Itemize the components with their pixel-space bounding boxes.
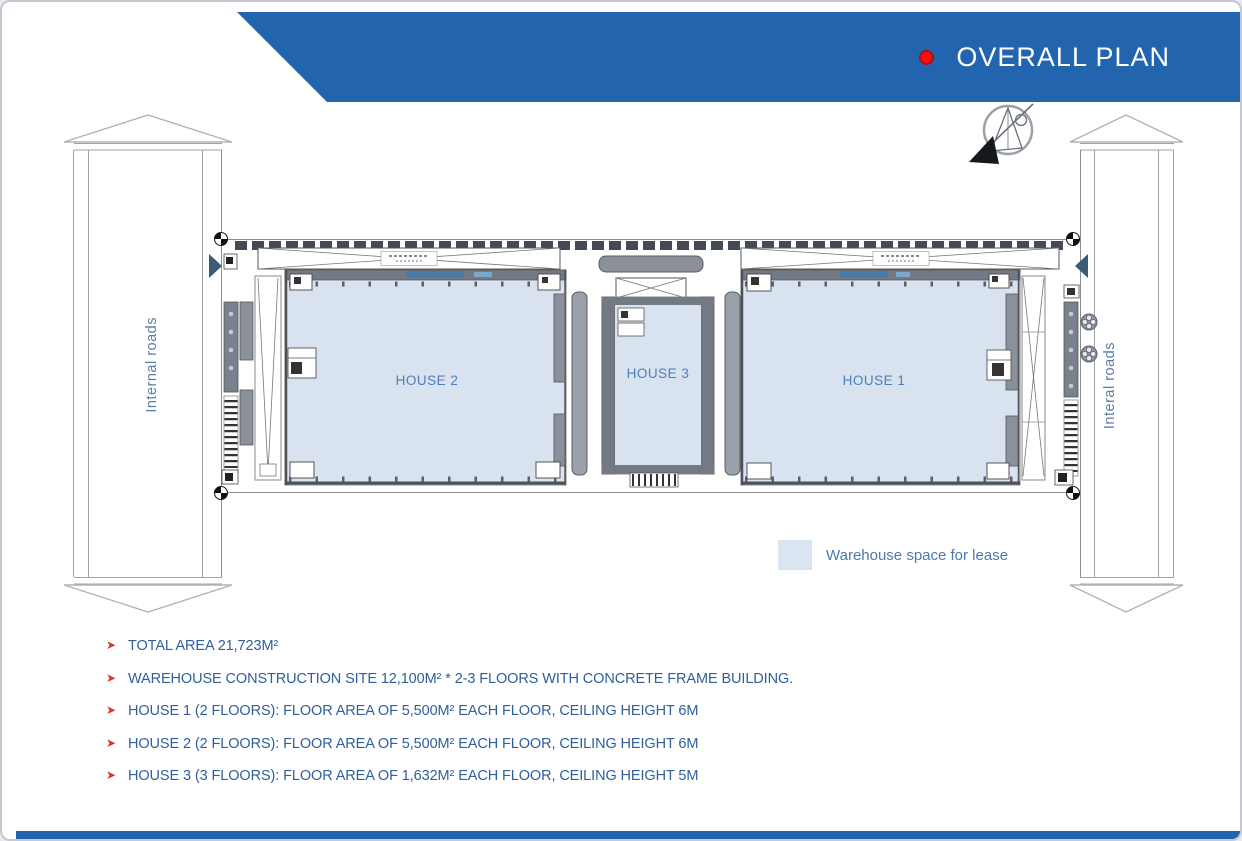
legend: Warehouse space for lease: [778, 540, 1008, 570]
note-item: ➤ HOUSE 3 (3 FLOORS): FLOOR AREA OF 1,63…: [106, 768, 793, 801]
legend-label: Warehouse space for lease: [826, 547, 1008, 564]
legend-swatch-icon: [778, 540, 812, 570]
survey-marker-icon: [215, 233, 228, 246]
note-text: HOUSE 2 (2 FLOORS): FLOOR AREA OF 5,500M…: [128, 736, 698, 752]
slide-page: OVERALL PLAN: [0, 0, 1242, 841]
right-edge-fixtures: [1055, 285, 1097, 485]
survey-marker-icon: [215, 487, 228, 500]
arrow-bullet-icon: ➤: [106, 638, 128, 652]
house3-label: HOUSE 3: [608, 366, 708, 381]
road-arrow-up-icon: [64, 115, 232, 142]
fan-icon: [1081, 346, 1097, 362]
note-text: TOTAL AREA 21,723M²: [128, 638, 278, 654]
note-item: ➤ HOUSE 2 (2 FLOORS): FLOOR AREA OF 5,50…: [106, 736, 793, 769]
note-text: WAREHOUSE CONSTRUCTION SITE 12,100M² * 2…: [128, 671, 793, 687]
canopy-truss-house1: [741, 248, 1059, 269]
road-arrow-down-icon: [1070, 585, 1183, 612]
right-road-label: Interal roads: [1102, 342, 1118, 429]
left-edge-fixtures: [222, 254, 238, 484]
survey-marker-icon: [1067, 233, 1080, 246]
arrow-bullet-icon: ➤: [106, 703, 128, 717]
note-text: HOUSE 1 (2 FLOORS): FLOOR AREA OF 5,500M…: [128, 703, 698, 719]
road-arrow-down-icon: [64, 585, 232, 612]
house3-structure: [602, 297, 714, 487]
fan-icon: [1081, 314, 1097, 330]
notes-list: ➤ TOTAL AREA 21,723M² ➤ WAREHOUSE CONSTR…: [106, 638, 793, 801]
north-arrow-icon: [969, 104, 1033, 164]
arrow-bullet-icon: ➤: [106, 736, 128, 750]
ramp-left: [255, 276, 281, 480]
survey-marker-icon: [1067, 487, 1080, 500]
house2-label: HOUSE 2: [347, 373, 507, 388]
road-arrow-up-icon: [1070, 115, 1183, 142]
house1-label: HOUSE 1: [794, 373, 954, 388]
arrow-bullet-icon: ➤: [106, 768, 128, 782]
note-text: HOUSE 3 (3 FLOORS): FLOOR AREA OF 1,632M…: [128, 768, 698, 784]
right-road: [1070, 115, 1183, 612]
canopy-truss-house2: [258, 248, 560, 269]
canopy-house3: [599, 256, 703, 298]
left-road-label: Internal roads: [144, 317, 160, 413]
ramp-right: [1022, 276, 1045, 480]
arrow-bullet-icon: ➤: [106, 671, 128, 685]
footer-accent-bar: [16, 831, 1240, 839]
entry-arrow-icon: [1075, 254, 1088, 278]
note-item: ➤ HOUSE 1 (2 FLOORS): FLOOR AREA OF 5,50…: [106, 703, 793, 736]
note-item: ➤ TOTAL AREA 21,723M²: [106, 638, 793, 671]
entry-arrow-icon: [209, 254, 222, 278]
note-item: ➤ WAREHOUSE CONSTRUCTION SITE 12,100M² *…: [106, 671, 793, 704]
